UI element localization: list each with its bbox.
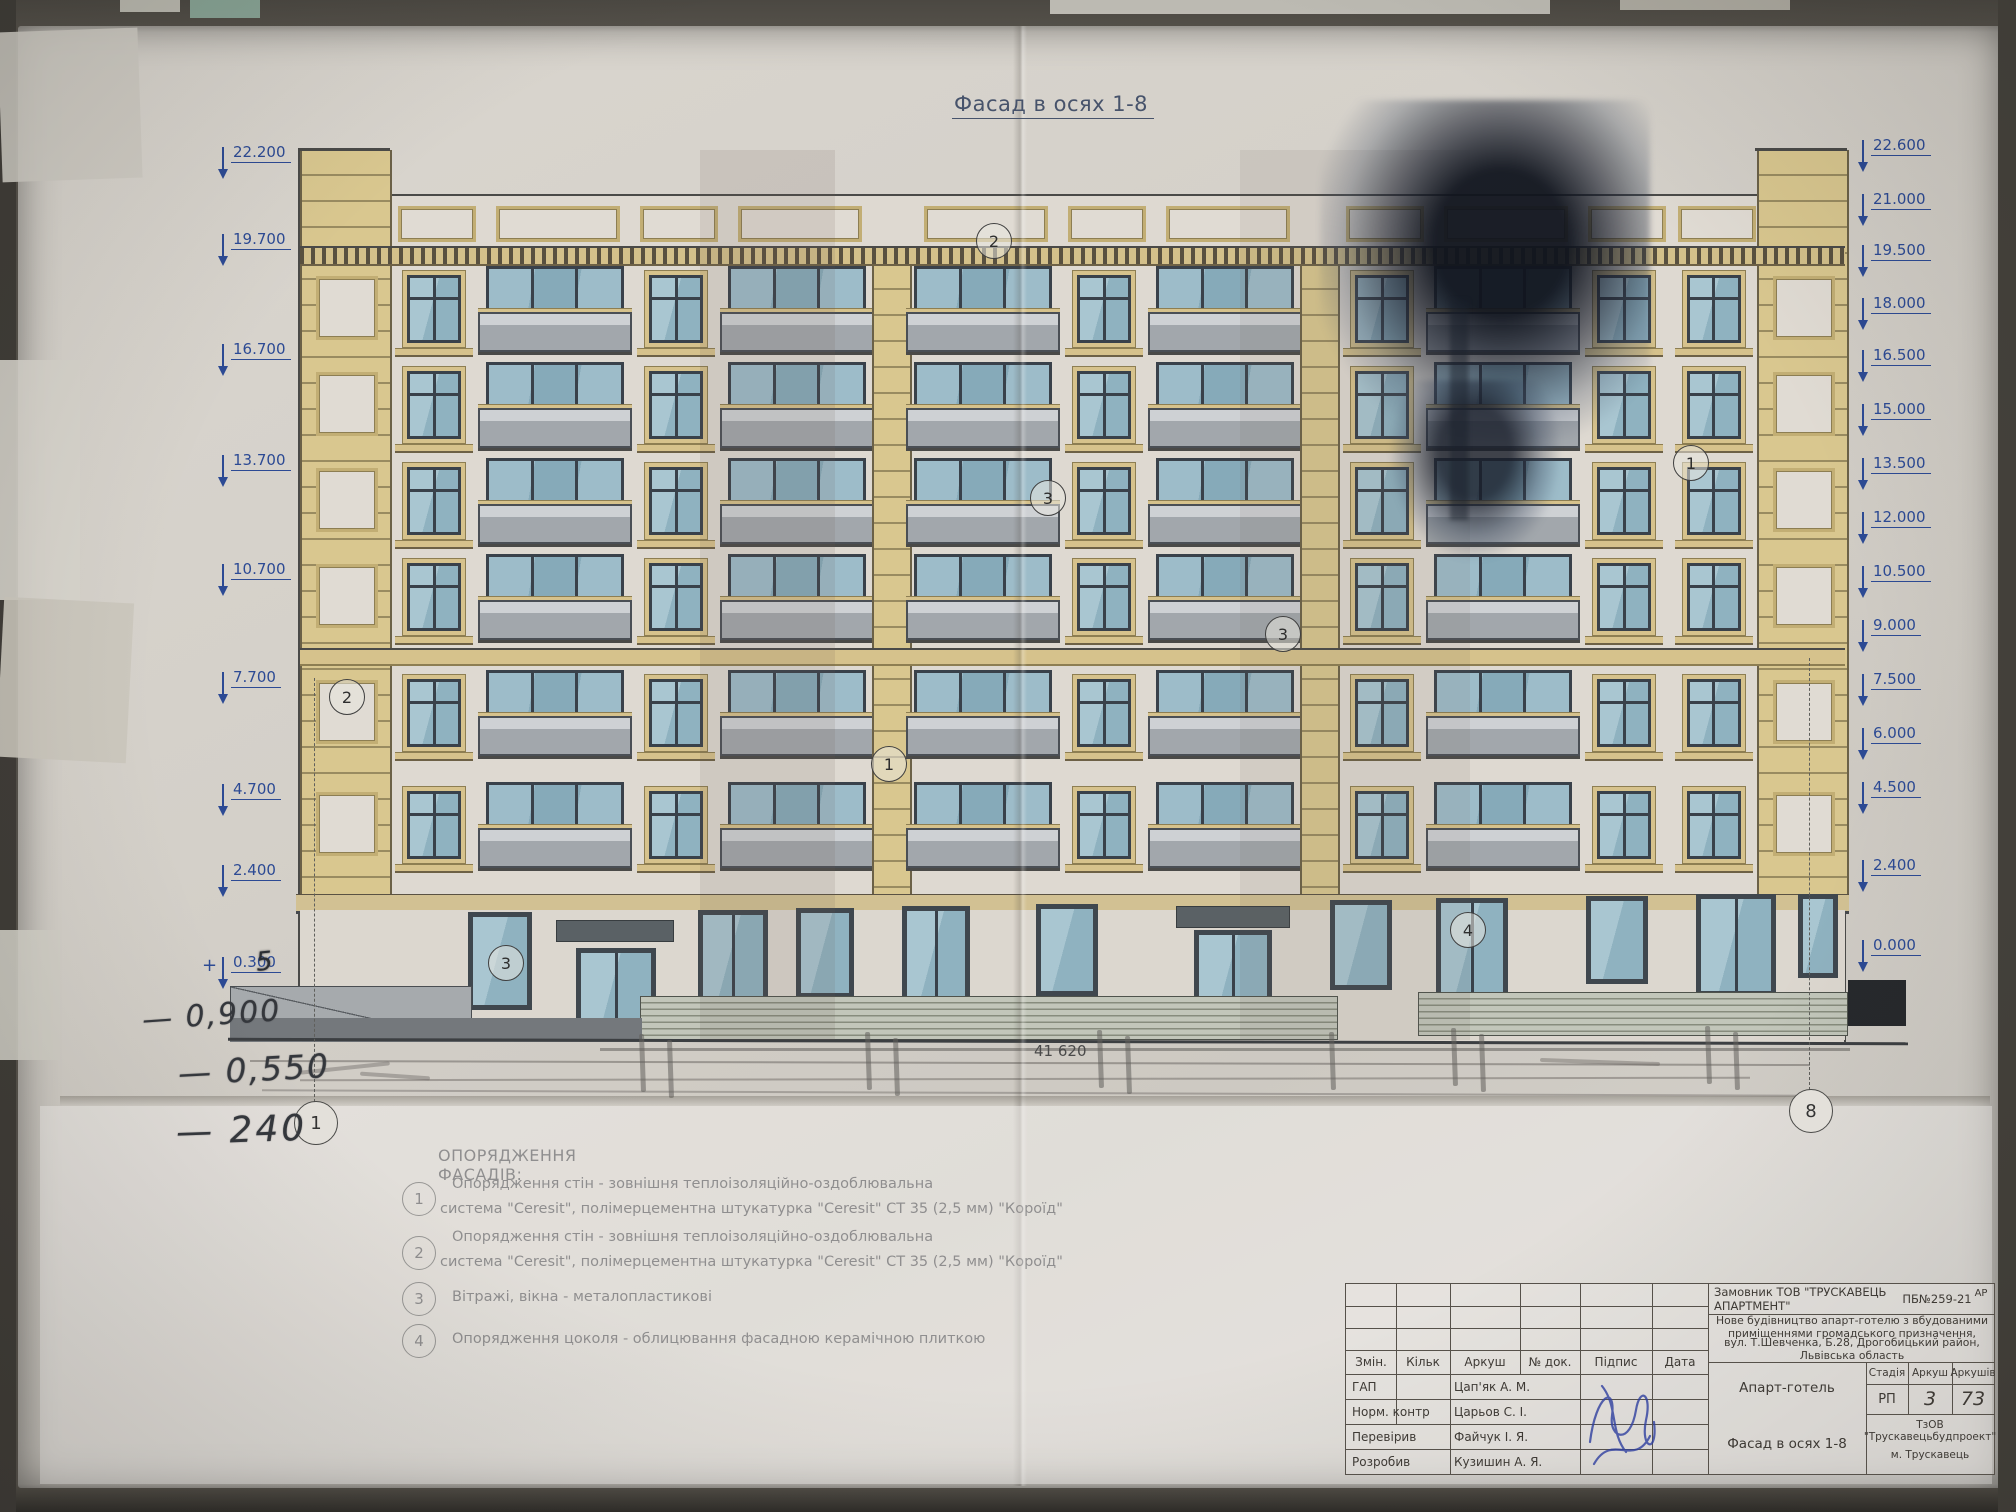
window-frame: [649, 467, 703, 535]
window-glass: [1358, 566, 1406, 628]
tower-top-line: [1755, 148, 1847, 151]
balcony-parapet-panel: [906, 716, 1060, 756]
window-mullion: [1381, 682, 1384, 744]
elevation-arrow: [1858, 534, 1868, 544]
elevation-value: 22.600: [1871, 136, 1931, 156]
window: [1072, 366, 1136, 444]
window: [1592, 558, 1656, 636]
balcony-parapet-panel: [906, 828, 1060, 868]
elevation-mark: 4.500: [1862, 782, 1954, 818]
parapet-panel: [496, 206, 620, 242]
window-transom: [410, 585, 458, 588]
elevation-value: 19.500: [1871, 241, 1931, 261]
balcony-shadow-line: [1148, 352, 1302, 355]
window-mullion: [675, 794, 678, 856]
elevation-mark: 13.500: [1862, 458, 1954, 494]
balcony-parapet-panel: [1426, 408, 1580, 448]
tb-customer: Замовник ТОВ "ТРУСКАВЕЦЬ АПАРТМЕНТ": [1714, 1284, 1904, 1314]
legend-item-2-number: 2: [402, 1236, 436, 1270]
storefront-window: [1798, 894, 1838, 978]
window-mullion: [675, 470, 678, 532]
legend-item-3-number: 3: [402, 1282, 436, 1316]
tb-name-3: Файчук І. Я.: [1450, 1424, 1584, 1449]
window-glass: [1080, 566, 1128, 628]
window-mullion: [1623, 278, 1626, 340]
parapet-panel: [738, 206, 862, 242]
window: [1592, 462, 1656, 540]
window-transom: [1358, 585, 1406, 588]
window-mullion: [1712, 278, 1715, 340]
window-mullion: [1623, 374, 1626, 436]
window: [1682, 674, 1746, 752]
window-frame: [407, 467, 461, 535]
balcony-parapet-panel: [1148, 312, 1302, 352]
pilaster-panel: [1773, 680, 1835, 744]
window-transom: [410, 489, 458, 492]
balcony-shadow-line: [1426, 756, 1580, 759]
window-sill: [1065, 864, 1143, 873]
tb-role-3: Перевірив: [1348, 1424, 1452, 1449]
window-transom: [1600, 585, 1648, 588]
window-transom: [1600, 813, 1648, 816]
window-glass: [1080, 278, 1128, 340]
elevation-value: 16.500: [1871, 346, 1931, 366]
window-sill: [1065, 752, 1143, 761]
window: [402, 462, 466, 540]
balcony-parapet-panel: [1426, 504, 1580, 544]
window: [1350, 462, 1414, 540]
elevation-mark: 10.700: [222, 564, 314, 600]
window-glass: [1080, 470, 1128, 532]
window-frame: [1077, 371, 1131, 439]
legend-item-2-line2: система "Ceresit", полімерцементна штука…: [440, 1254, 1063, 1270]
window-sill: [637, 752, 715, 761]
title-block: Змін. Кільк Аркуш № док. Підпис Дата ГАП…: [1345, 1283, 1995, 1475]
elevation-value: 7.700: [231, 668, 281, 688]
elevation-arrow: [218, 586, 228, 596]
balcony-parapet-panel: [478, 828, 632, 868]
tb-role-2: Норм. контр: [1348, 1399, 1452, 1424]
desk-bottom-edge: [0, 1484, 2016, 1512]
balcony-shadow-line: [1148, 756, 1302, 759]
window: [644, 270, 708, 348]
facade-marker-3: 3: [488, 945, 524, 981]
window-mullion: [1103, 566, 1106, 628]
window: [1072, 674, 1136, 752]
window-frame: [1597, 467, 1651, 535]
tb-role-1: ГАП: [1348, 1374, 1452, 1399]
legend-item-1-number: 1: [402, 1182, 436, 1216]
elevation-arrow: [218, 477, 228, 487]
window-frame: [1077, 563, 1131, 631]
door-glass: [1591, 901, 1643, 979]
window-glass: [1690, 682, 1738, 744]
window-mullion: [1381, 278, 1384, 340]
balcony-shadow-line: [1148, 868, 1302, 871]
window: [644, 786, 708, 864]
window-frame: [1355, 467, 1409, 535]
window-glass: [1600, 566, 1648, 628]
legend-item-4-line1: Опорядження цоколя - облицювання фасадно…: [452, 1331, 985, 1347]
balcony-shadow-line: [720, 352, 874, 355]
window-transom: [1080, 489, 1128, 492]
balcony-shadow-line: [720, 756, 874, 759]
elevation-arrow: [218, 366, 228, 376]
balcony-parapet-panel: [720, 504, 874, 544]
window-sill: [1065, 636, 1143, 645]
elevation-mark: 19.500: [1862, 245, 1954, 281]
balcony-parapet-panel: [1426, 600, 1580, 640]
dark-block-right: [1848, 980, 1906, 1026]
window-mullion: [1103, 794, 1106, 856]
window-glass: [410, 566, 458, 628]
window-transom: [1358, 489, 1406, 492]
pilaster-panel: [316, 468, 378, 532]
elevation-value: 9.000: [1871, 616, 1921, 636]
window: [1592, 674, 1656, 752]
balcony-shadow-line: [906, 352, 1060, 355]
balcony-parapet-panel: [720, 408, 874, 448]
window-frame: [649, 371, 703, 439]
elevation-value: 12.000: [1871, 508, 1931, 528]
tb-object-name: Апарт-готель: [1708, 1362, 1866, 1414]
balcony-parapet-panel: [1426, 716, 1580, 756]
window: [1072, 786, 1136, 864]
window-sill: [395, 444, 473, 453]
pilaster-panel: [316, 792, 378, 856]
parapet-panel: [1166, 206, 1290, 242]
window-glass: [1690, 374, 1738, 436]
balcony-shadow-line: [720, 448, 874, 451]
tb-col-arkush: Аркуш: [1450, 1350, 1520, 1374]
window-frame: [1597, 563, 1651, 631]
window-frame: [1687, 563, 1741, 631]
window-transom: [652, 393, 700, 396]
window-frame: [1355, 563, 1409, 631]
elevation-arrow: [218, 806, 228, 816]
elevation-arrow: [1862, 350, 1864, 374]
window-frame: [1687, 371, 1741, 439]
elevation-arrow: [1858, 320, 1868, 330]
window-mullion: [1623, 682, 1626, 744]
balcony-shadow-line: [720, 640, 874, 643]
balcony-parapet-panel: [720, 312, 874, 352]
window-transom: [410, 701, 458, 704]
parapet-panel: [1068, 206, 1146, 242]
elevation-arrow: [1862, 458, 1864, 482]
elevation-mark: 0.300+5: [222, 957, 314, 993]
window-glass: [1690, 566, 1738, 628]
window-transom: [1600, 393, 1648, 396]
door-glass: [1335, 905, 1387, 985]
elevation-arrow: [1862, 298, 1864, 322]
tb-col-docno: № док.: [1520, 1350, 1580, 1374]
window-glass: [410, 682, 458, 744]
plus-prefix: +: [202, 955, 217, 976]
stylobate-left: [640, 996, 1338, 1040]
window-transom: [1080, 701, 1128, 704]
elevation-mark: 12.000: [1862, 512, 1954, 548]
window-mullion: [433, 374, 436, 436]
window-sill: [1585, 636, 1663, 645]
elevation-arrow: [222, 672, 224, 696]
balcony-parapet-panel: [1148, 504, 1302, 544]
tb-col-pidpys: Підпис: [1580, 1350, 1652, 1374]
window-sill: [637, 864, 715, 873]
elevation-value: 6.000: [1871, 724, 1921, 744]
balcony-parapet-panel: [1148, 408, 1302, 448]
window-glass: [652, 682, 700, 744]
window-transom: [1690, 701, 1738, 704]
tb-name-2: Царьов С. І.: [1450, 1399, 1584, 1424]
elevation-arrow: [1862, 566, 1864, 590]
elevation-mark: 9.000: [1862, 620, 1954, 656]
balcony-parapet-panel: [478, 716, 632, 756]
tb-corner-code: АР: [1970, 1286, 1992, 1300]
legend-item-1-line2: система "Ceresit", полімерцементна штука…: [440, 1201, 1063, 1217]
window-transom: [1358, 297, 1406, 300]
balcony-shadow-line: [906, 868, 1060, 871]
elevation-arrow: [222, 455, 224, 479]
elevation-arrow: [218, 256, 228, 266]
window-transom: [1600, 701, 1648, 704]
window-glass: [410, 278, 458, 340]
balcony-shadow-line: [478, 868, 632, 871]
elevation-arrow: [1858, 480, 1868, 490]
elevation-arrow: [1862, 674, 1864, 698]
window-glass: [1358, 682, 1406, 744]
window-mullion: [1712, 566, 1715, 628]
door-glass: [1199, 935, 1267, 1005]
window: [1072, 558, 1136, 636]
window-frame: [649, 563, 703, 631]
window-sill: [1343, 540, 1421, 549]
storefront-window: [1330, 900, 1392, 990]
window: [644, 462, 708, 540]
window-glass: [410, 794, 458, 856]
facade-marker-1: 1: [1673, 445, 1709, 481]
window: [1350, 558, 1414, 636]
window-frame: [1077, 791, 1131, 859]
elevation-arrow: [218, 694, 228, 704]
window: [1592, 786, 1656, 864]
facade-marker-3: 3: [1030, 480, 1066, 516]
tb-col-data: Дата: [1652, 1350, 1708, 1374]
elevation-arrow: [1858, 804, 1868, 814]
parapet-panel: [1588, 206, 1666, 242]
legend-item-3-line1: Вітражі, вікна - металопластикові: [452, 1289, 712, 1305]
elevation-arrow: [1862, 860, 1864, 884]
elevation-mark: 10.500: [1862, 566, 1954, 602]
window-sill: [1675, 636, 1753, 645]
window-transom: [1080, 585, 1128, 588]
door-mullion: [615, 953, 618, 1021]
window-frame: [1597, 275, 1651, 343]
elevation-arrow: [1862, 245, 1864, 269]
window-transom: [1600, 489, 1648, 492]
window-mullion: [1712, 682, 1715, 744]
elevation-value: 16.700: [231, 340, 291, 360]
window-frame: [1077, 275, 1131, 343]
window: [1072, 270, 1136, 348]
window-mullion: [1381, 470, 1384, 532]
elevation-mark: 18.000: [1862, 298, 1954, 334]
pilaster-strip: [1300, 264, 1340, 894]
elevation-arrow: [222, 147, 224, 171]
window-mullion: [1712, 374, 1715, 436]
door-mullion: [935, 911, 938, 1001]
facade-marker-2: 2: [329, 679, 365, 715]
window-glass: [1600, 278, 1648, 340]
window-sill: [1065, 540, 1143, 549]
balcony-shadow-line: [1148, 544, 1302, 547]
window-sill: [1675, 348, 1753, 357]
window-glass: [1600, 470, 1648, 532]
door-glass: [1701, 899, 1771, 991]
parapet-top-line: [388, 194, 1757, 196]
stylobate-right: [1418, 992, 1848, 1036]
balcony-parapet-panel: [906, 408, 1060, 448]
window-mullion: [1381, 794, 1384, 856]
elevation-mark: 0.000: [1862, 940, 1954, 976]
elevation-arrow: [1858, 696, 1868, 706]
tb-stage-label: Стадія: [1866, 1362, 1908, 1384]
window: [402, 786, 466, 864]
elevation-mark: 13.700: [222, 455, 314, 491]
balcony-parapet-panel: [720, 600, 874, 640]
axis-bubble-8: 8: [1789, 1089, 1833, 1133]
pilaster-strip: [872, 264, 912, 894]
paper-scrap: [1050, 0, 1550, 14]
storefront-window: [796, 908, 854, 998]
elevation-arrow: [1862, 404, 1864, 428]
window: [1592, 270, 1656, 348]
tb-doc-number: ПБ№259-21: [1902, 1284, 1972, 1314]
elevation-arrow: [1858, 162, 1868, 172]
balcony-parapet-panel: [906, 312, 1060, 352]
elevation-arrow: [1858, 267, 1868, 277]
parapet-panel: [398, 206, 476, 242]
window-transom: [652, 813, 700, 816]
elevation-mark: 22.600: [1862, 140, 1954, 176]
window: [1682, 270, 1746, 348]
balcony-parapet-panel: [1426, 828, 1580, 868]
window-glass: [1358, 470, 1406, 532]
window: [644, 366, 708, 444]
window-sill: [1675, 864, 1753, 873]
window-transom: [410, 813, 458, 816]
elevation-value: 2.400: [1871, 856, 1921, 876]
balcony-parapet-panel: [720, 716, 874, 756]
paper-scrap: [190, 0, 260, 18]
window-glass: [1690, 794, 1738, 856]
handwritten-overlay-digit: 5: [254, 946, 274, 978]
entrance-door: [1696, 894, 1776, 996]
window-sill: [1343, 348, 1421, 357]
window-frame: [1597, 791, 1651, 859]
window-mullion: [433, 566, 436, 628]
window-transom: [1690, 393, 1738, 396]
entrance-door: [902, 906, 970, 1006]
door-mullion: [732, 915, 735, 1003]
window-frame: [407, 371, 461, 439]
window-transom: [652, 701, 700, 704]
window-sill: [1585, 752, 1663, 761]
window-sill: [395, 540, 473, 549]
window-frame: [1355, 371, 1409, 439]
storefront-window: [1586, 896, 1648, 984]
window-frame: [407, 563, 461, 631]
door-mullion: [1735, 899, 1738, 991]
balcony-shadow-line: [1426, 544, 1580, 547]
window-transom: [410, 297, 458, 300]
window-glass: [1358, 374, 1406, 436]
elevation-arrow: [1858, 882, 1868, 892]
window-sill: [1343, 752, 1421, 761]
window-frame: [1077, 467, 1131, 535]
window-sill: [395, 752, 473, 761]
window-mullion: [1103, 470, 1106, 532]
elevation-arrow: [1862, 728, 1864, 752]
tb-stage-value: РП: [1866, 1384, 1908, 1414]
window-glass: [1080, 682, 1128, 744]
facade-marker-1: 1: [871, 746, 907, 782]
window-glass: [1690, 278, 1738, 340]
window-glass: [652, 794, 700, 856]
photo-of-blueprint: { "drawing": { "title": "Фасад в осях 1-…: [0, 0, 2016, 1512]
handwritten-elevation-2: — 0,550: [177, 1046, 331, 1093]
axis-line-1: [314, 678, 315, 1102]
window-transom: [1358, 393, 1406, 396]
window: [1350, 270, 1414, 348]
window-glass: [1600, 374, 1648, 436]
window-sill: [395, 636, 473, 645]
entrance-door: [698, 910, 768, 1008]
window: [402, 366, 466, 444]
window-transom: [1080, 297, 1128, 300]
elevation-value: 0.000: [1871, 936, 1921, 956]
window-mullion: [675, 682, 678, 744]
window: [1072, 462, 1136, 540]
window-frame: [407, 679, 461, 747]
elevation-mark: 7.700: [222, 672, 314, 708]
window-glass: [410, 470, 458, 532]
window-mullion: [433, 682, 436, 744]
window: [1682, 786, 1746, 864]
window: [644, 558, 708, 636]
window-transom: [1690, 813, 1738, 816]
window-mullion: [1103, 374, 1106, 436]
window-mullion: [1623, 794, 1626, 856]
window-transom: [1690, 585, 1738, 588]
window-transom: [652, 297, 700, 300]
elevation-arrow: [1862, 512, 1864, 536]
balcony-shadow-line: [1426, 640, 1580, 643]
window-sill: [1675, 540, 1753, 549]
tb-sheet-name: Фасад в осях 1-8: [1708, 1414, 1866, 1474]
window: [1350, 786, 1414, 864]
window-mullion: [1103, 278, 1106, 340]
drawing-title: Фасад в осях 1-8: [952, 92, 1154, 119]
window-frame: [407, 275, 461, 343]
window-frame: [407, 791, 461, 859]
window: [1682, 366, 1746, 444]
elevation-mark: 21.000: [1862, 194, 1954, 230]
window-glass: [1358, 278, 1406, 340]
balcony-parapet-panel: [478, 504, 632, 544]
window-sill: [395, 348, 473, 357]
window-sill: [637, 348, 715, 357]
